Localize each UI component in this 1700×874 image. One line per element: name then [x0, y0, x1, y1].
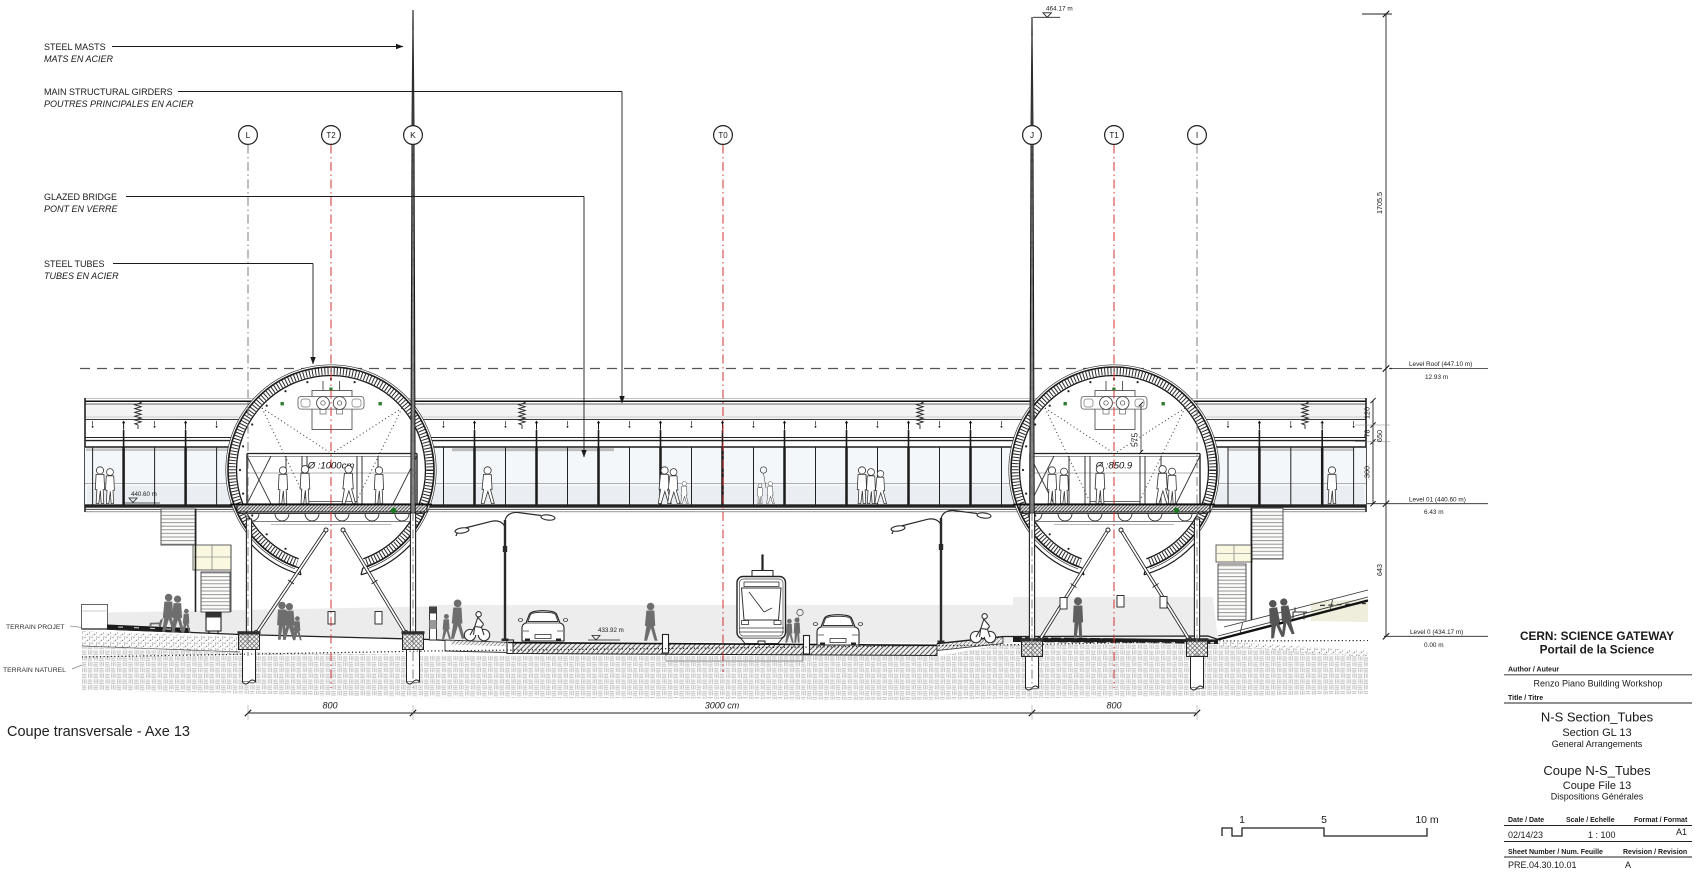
svg-text:Sheet Number / Num. Feuille: Sheet Number / Num. Feuille — [1508, 849, 1603, 856]
svg-text:Dispositions Générales: Dispositions Générales — [1551, 792, 1644, 802]
svg-text:440.60 m: 440.60 m — [131, 491, 157, 498]
svg-text:Coupe N-S_Tubes: Coupe N-S_Tubes — [1543, 763, 1651, 778]
svg-text:5: 5 — [1321, 814, 1327, 826]
svg-text:Scale / Echelle: Scale / Echelle — [1566, 817, 1615, 824]
svg-text:10 m: 10 m — [1415, 814, 1439, 826]
svg-text:433.92 m: 433.92 m — [598, 627, 624, 634]
svg-text:02/14/23: 02/14/23 — [1508, 830, 1543, 840]
svg-text:Format / Format: Format / Format — [1634, 817, 1688, 824]
svg-text:800: 800 — [1106, 701, 1121, 711]
svg-text:STEEL TUBES: STEEL TUBES — [44, 259, 105, 269]
svg-text:1705.5: 1705.5 — [1375, 192, 1384, 214]
svg-text:PRE.04.30.10.01: PRE.04.30.10.01 — [1508, 860, 1577, 870]
svg-text:A1: A1 — [1676, 827, 1687, 837]
svg-text:PONT EN VERRE: PONT EN VERRE — [44, 204, 119, 214]
svg-text:Coupe File 13: Coupe File 13 — [1563, 780, 1632, 792]
svg-text:TUBES EN ACIER: TUBES EN ACIER — [44, 271, 119, 281]
svg-text:464.17 m: 464.17 m — [1046, 6, 1073, 13]
svg-text:MAIN STRUCTURAL GIRDERS: MAIN STRUCTURAL GIRDERS — [44, 87, 173, 97]
svg-text:TERRAIN NATUREL: TERRAIN NATUREL — [3, 667, 66, 674]
svg-text:POUTRES PRINCIPALES EN ACIER: POUTRES PRINCIPALES EN ACIER — [44, 99, 194, 109]
svg-text:Author / Auteur: Author / Auteur — [1508, 667, 1559, 674]
svg-text:575: 575 — [1130, 433, 1140, 447]
svg-text:T1: T1 — [1109, 131, 1119, 140]
svg-text:L: L — [246, 130, 251, 140]
svg-text:0.00 m: 0.00 m — [1424, 642, 1444, 649]
svg-text:TERRAIN PROJET: TERRAIN PROJET — [6, 624, 65, 631]
svg-text:300: 300 — [1363, 466, 1372, 478]
svg-text:Title / Titre: Title / Titre — [1508, 695, 1543, 702]
svg-text:Level 01 (440.60 m): Level 01 (440.60 m) — [1409, 496, 1466, 503]
svg-text:MATS EN ACIER: MATS EN ACIER — [44, 54, 114, 64]
svg-text:78: 78 — [1363, 430, 1372, 438]
svg-text:650: 650 — [1375, 430, 1384, 442]
svg-text:6.43 m: 6.43 m — [1424, 509, 1444, 516]
svg-text:CERN: SCIENCE GATEWAY: CERN: SCIENCE GATEWAY — [1520, 629, 1674, 643]
svg-text:STEEL MASTS: STEEL MASTS — [44, 42, 106, 52]
svg-text:I: I — [1196, 130, 1198, 140]
svg-text:A: A — [1625, 860, 1631, 870]
svg-text:3000 cm: 3000 cm — [705, 701, 740, 711]
svg-text:12.93 m: 12.93 m — [1425, 374, 1448, 381]
svg-text:Level Roof (447.10 m): Level Roof (447.10 m) — [1409, 361, 1472, 368]
svg-text:T0: T0 — [718, 131, 728, 140]
svg-text:General Arrangements: General Arrangements — [1552, 739, 1643, 749]
svg-text:Coupe transversale - Axe 13: Coupe transversale - Axe 13 — [7, 724, 190, 740]
svg-text:Revision / Revision: Revision / Revision — [1623, 849, 1687, 856]
svg-text:Renzo Piano Building Workshop: Renzo Piano Building Workshop — [1534, 679, 1663, 689]
svg-text:800: 800 — [322, 701, 337, 711]
svg-text:N-S Section_Tubes: N-S Section_Tubes — [1541, 710, 1654, 725]
svg-text:Level 0 (434.17 m): Level 0 (434.17 m) — [1410, 629, 1463, 636]
svg-text:T2: T2 — [326, 131, 336, 140]
svg-text:1 : 100: 1 : 100 — [1588, 830, 1616, 840]
svg-text:Date / Date: Date / Date — [1508, 817, 1544, 824]
svg-text:643: 643 — [1375, 564, 1384, 576]
svg-text:Section GL 13: Section GL 13 — [1562, 727, 1631, 739]
svg-text:GLAZED BRIDGE: GLAZED BRIDGE — [44, 192, 117, 202]
svg-text:1: 1 — [1239, 814, 1245, 826]
svg-text:Portail de la Science: Portail de la Science — [1540, 643, 1655, 657]
svg-text:J: J — [1030, 130, 1034, 140]
svg-text:120: 120 — [1363, 407, 1372, 419]
svg-text:K: K — [410, 130, 416, 140]
